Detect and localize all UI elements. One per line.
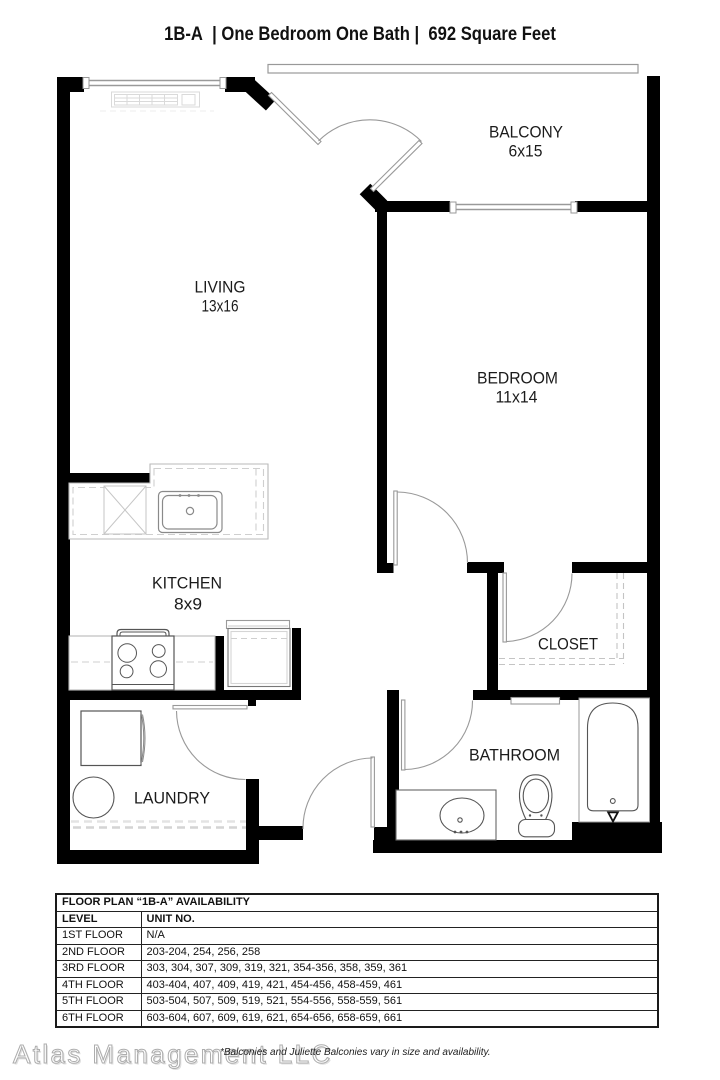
svg-text:BEDROOM: BEDROOM bbox=[477, 370, 558, 388]
svg-text:KITCHEN: KITCHEN bbox=[152, 575, 222, 593]
svg-text:6x15: 6x15 bbox=[509, 143, 543, 161]
svg-text:13x16: 13x16 bbox=[202, 298, 239, 316]
svg-text:8x9: 8x9 bbox=[174, 596, 202, 614]
svg-text:CLOSET: CLOSET bbox=[538, 636, 598, 654]
svg-text:BALCONY: BALCONY bbox=[489, 124, 563, 142]
svg-text:11x14: 11x14 bbox=[496, 389, 538, 407]
svg-text:LAUNDRY: LAUNDRY bbox=[134, 790, 210, 808]
svg-text:BATHROOM: BATHROOM bbox=[469, 747, 560, 765]
svg-text:LIVING: LIVING bbox=[195, 279, 246, 297]
